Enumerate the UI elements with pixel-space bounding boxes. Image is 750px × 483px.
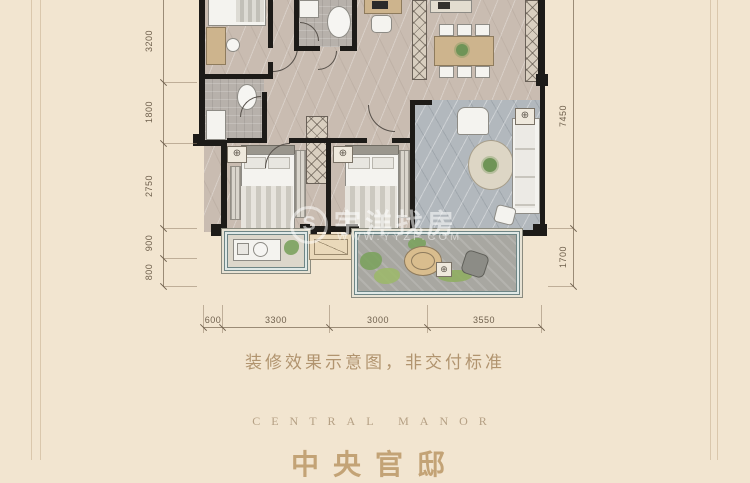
- drain-icon: ⊕: [436, 262, 452, 277]
- wall-corner: [193, 134, 205, 146]
- pillow: [244, 157, 266, 169]
- drain-icon: ⊕: [227, 146, 247, 163]
- dim-label-right-1700: 1700: [558, 246, 568, 268]
- dim-label-left-800: 800: [144, 264, 154, 281]
- drain-icon: ⊕: [515, 108, 535, 125]
- wall-corner: [533, 224, 547, 236]
- kitchen-counter: [430, 0, 472, 13]
- pillow: [372, 157, 394, 169]
- dim-guide: [163, 143, 197, 144]
- wall: [227, 138, 267, 143]
- toilet-2: [327, 6, 351, 38]
- dim-label-bottom-600: 600: [205, 315, 222, 325]
- wall: [352, 0, 357, 50]
- sink-2: [299, 0, 319, 18]
- dim-guide: [163, 286, 197, 287]
- wall: [221, 140, 227, 236]
- sink-1: [206, 110, 226, 140]
- rug-plant: [483, 158, 497, 172]
- dim-label-bottom-3000: 3000: [367, 315, 389, 325]
- dim-guide: [163, 228, 197, 229]
- closet-strip: [230, 166, 241, 220]
- dim-label-right-7450: 7450: [558, 105, 568, 127]
- drain-icon: ⊕: [333, 146, 353, 163]
- armchair: [457, 107, 489, 135]
- wall: [540, 84, 545, 236]
- wall: [199, 0, 205, 146]
- vanity-stool: [226, 38, 240, 52]
- blanket-a: [241, 186, 293, 232]
- wall: [262, 92, 267, 142]
- dim-line-right: [573, 0, 574, 287]
- wall: [268, 0, 273, 48]
- dining-chair: [439, 24, 454, 36]
- study-chair: [371, 15, 392, 33]
- bedroom-wardrobe: [306, 116, 328, 184]
- wall-corner: [211, 224, 225, 236]
- dim-label-left-1800: 1800: [144, 101, 154, 123]
- bed-blanket: [236, 0, 264, 22]
- dim-label-bottom-3550: 3550: [473, 315, 495, 325]
- vanity-desk: [206, 27, 226, 65]
- dim-label-bottom-3300: 3300: [265, 315, 287, 325]
- watermark-logo-icon: S: [290, 206, 328, 244]
- brand-name-english: CENTRAL MANOR: [0, 414, 750, 429]
- washer: [237, 243, 249, 255]
- wall: [294, 46, 320, 51]
- wall: [204, 74, 273, 79]
- wall: [331, 138, 367, 143]
- brand-name-chinese-clipped: 中央官邸: [0, 443, 750, 483]
- dining-chair: [457, 66, 472, 78]
- dining-chair: [475, 24, 490, 36]
- wall: [289, 138, 330, 143]
- dim-guide: [548, 286, 574, 287]
- desk-monitor: [372, 1, 388, 9]
- cooktop: [438, 2, 450, 9]
- table-plant: [456, 44, 468, 56]
- hallway-wardrobe: [412, 0, 427, 80]
- dim-guide: [163, 258, 197, 259]
- dining-chair: [457, 24, 472, 36]
- wall: [340, 46, 357, 51]
- wall: [294, 0, 299, 50]
- dim-label-left-900: 900: [144, 235, 154, 252]
- dim-label-left-3200: 3200: [144, 30, 154, 52]
- dim-label-left-2750: 2750: [144, 175, 154, 197]
- dining-chair: [439, 66, 454, 78]
- disclaimer-caption: 装修效果示意图，非交付标准: [0, 348, 750, 373]
- garden-table-ring: [411, 252, 435, 270]
- dining-chair: [475, 66, 490, 78]
- watermark-url: WWW.YYZF.COM: [337, 231, 462, 243]
- dim-guide: [163, 82, 197, 83]
- wall: [410, 100, 432, 105]
- laundry-sink: [253, 242, 268, 257]
- wall: [538, 0, 545, 84]
- dim-guide: [548, 228, 574, 229]
- sofa-cushions: [515, 122, 535, 208]
- dim-line-bottom: [203, 327, 541, 328]
